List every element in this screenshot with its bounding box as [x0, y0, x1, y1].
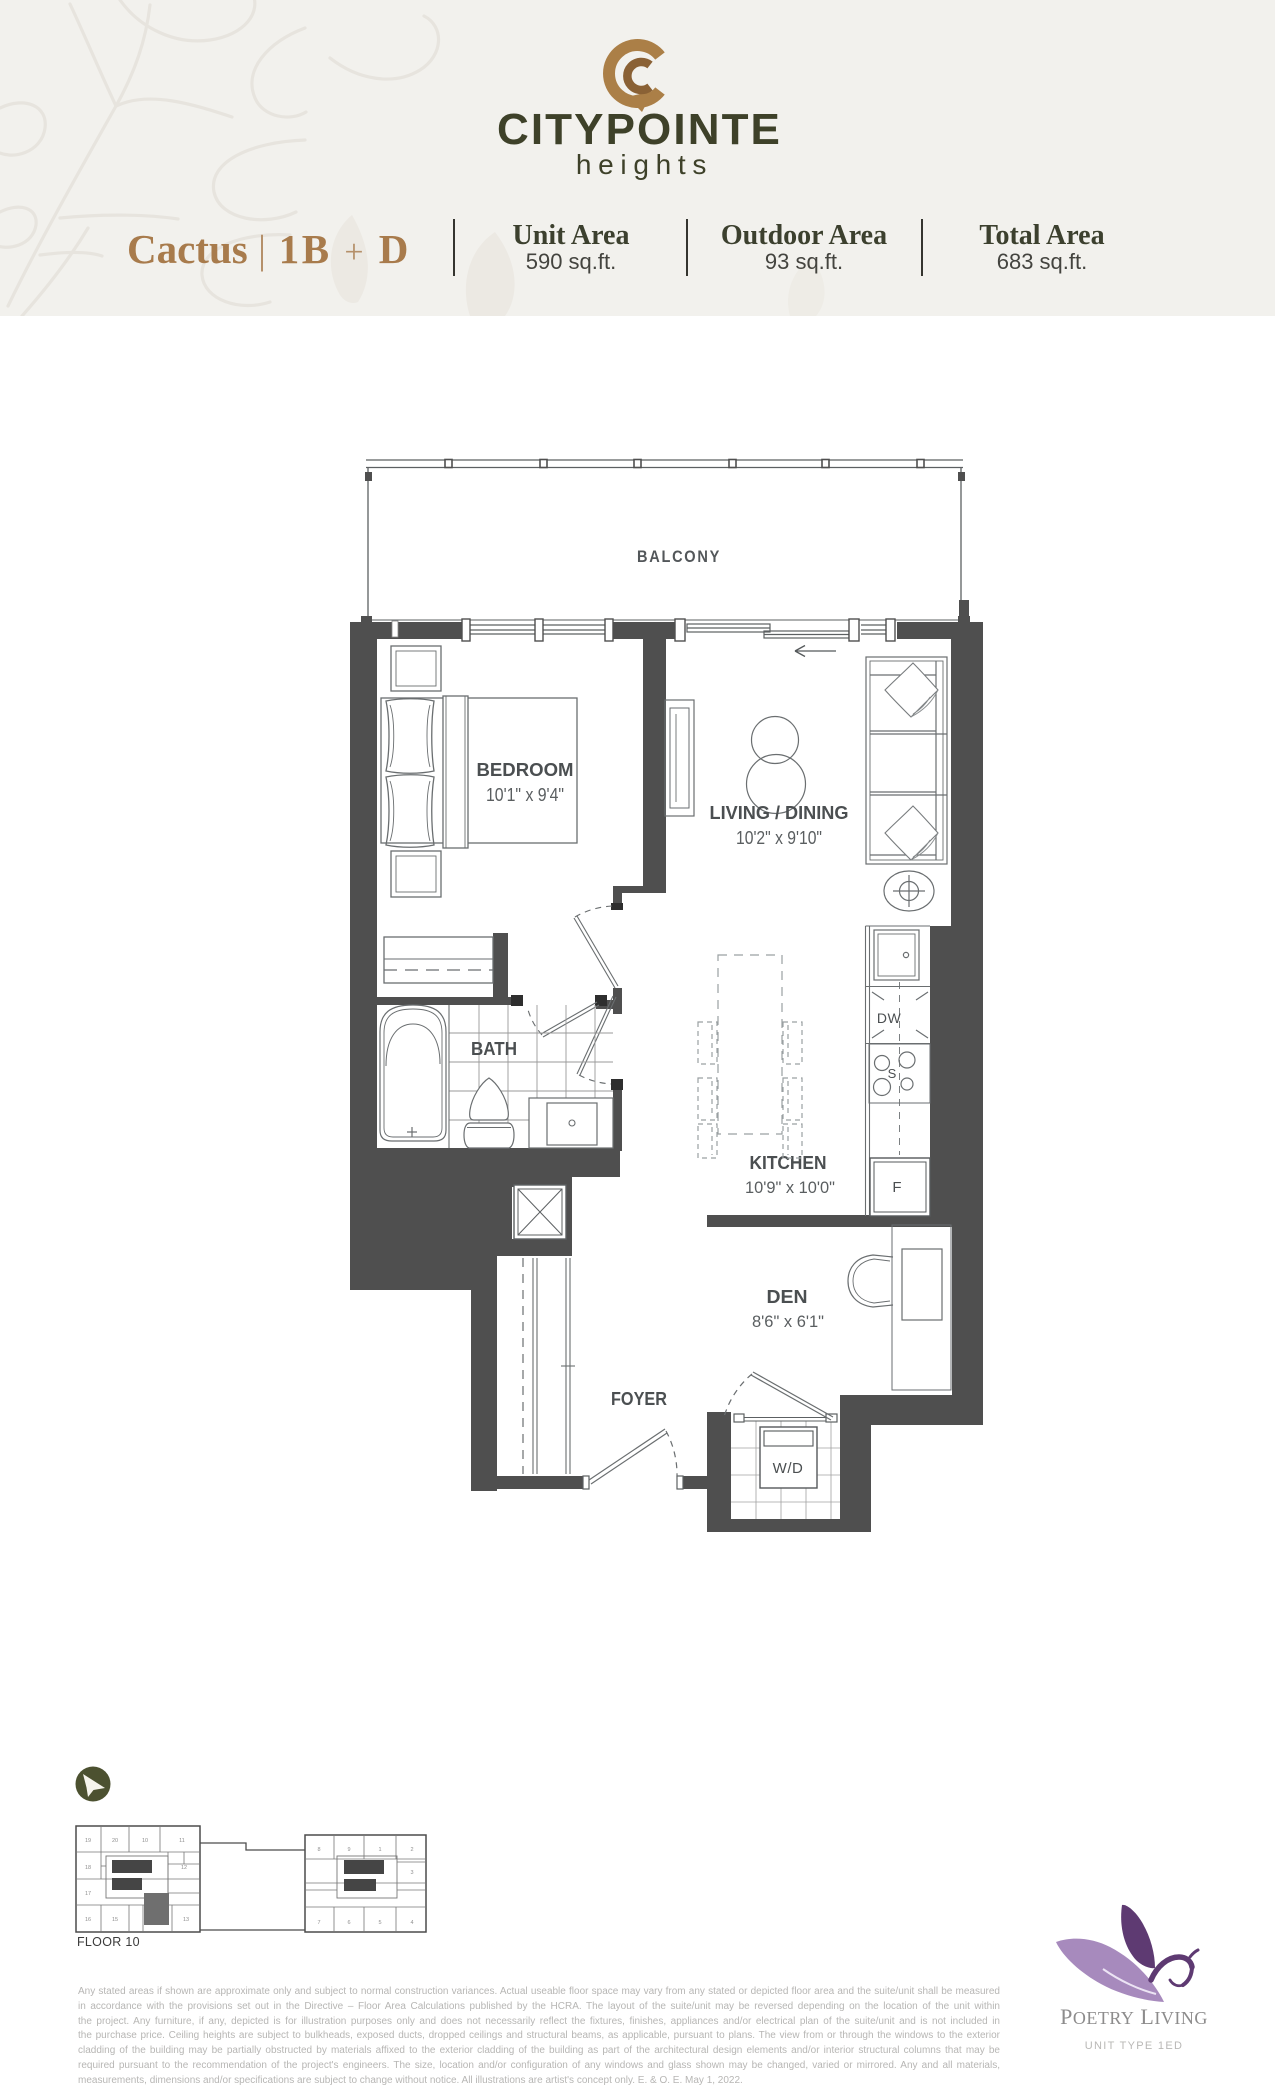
svg-text:4: 4	[410, 1920, 413, 1926]
svg-text:11: 11	[179, 1838, 185, 1844]
svg-text:12: 12	[181, 1865, 187, 1871]
svg-text:DEN: DEN	[767, 1286, 808, 1307]
svg-text:F: F	[892, 1179, 901, 1196]
svg-text:3: 3	[410, 1870, 413, 1876]
svg-text:13: 13	[183, 1917, 189, 1923]
svg-text:8: 8	[317, 1847, 320, 1853]
svg-text:W/D: W/D	[773, 1460, 804, 1477]
svg-text:16: 16	[85, 1917, 91, 1923]
svg-text:LIVING / DINING: LIVING / DINING	[710, 802, 849, 823]
svg-text:15: 15	[112, 1917, 118, 1923]
svg-text:10: 10	[142, 1838, 148, 1844]
svg-text:2: 2	[410, 1847, 413, 1853]
svg-text:BEDROOM: BEDROOM	[477, 759, 574, 780]
svg-text:FLOOR 10: FLOOR 10	[77, 1935, 140, 1949]
svg-text:KITCHEN: KITCHEN	[750, 1152, 827, 1173]
svg-text:S: S	[888, 1066, 897, 1081]
svg-text:10'9" x 10'0": 10'9" x 10'0"	[745, 1178, 835, 1197]
svg-text:19: 19	[85, 1838, 91, 1844]
svg-text:DW: DW	[877, 1010, 902, 1026]
svg-text:10'2" x 9'10": 10'2" x 9'10"	[736, 828, 822, 848]
svg-text:6: 6	[347, 1920, 350, 1926]
svg-text:9: 9	[347, 1847, 350, 1853]
svg-text:8'6" x 6'1": 8'6" x 6'1"	[752, 1312, 824, 1331]
svg-text:10'1" x 9'4": 10'1" x 9'4"	[486, 785, 564, 805]
svg-text:FOYER: FOYER	[611, 1388, 667, 1409]
svg-text:18: 18	[85, 1865, 91, 1871]
svg-text:BATH: BATH	[471, 1038, 517, 1059]
svg-text:17: 17	[85, 1891, 91, 1897]
svg-text:7: 7	[317, 1920, 320, 1926]
svg-text:20: 20	[112, 1838, 118, 1844]
svg-text:BALCONY: BALCONY	[637, 547, 721, 566]
svg-text:1: 1	[378, 1847, 381, 1853]
svg-text:5: 5	[378, 1920, 381, 1926]
